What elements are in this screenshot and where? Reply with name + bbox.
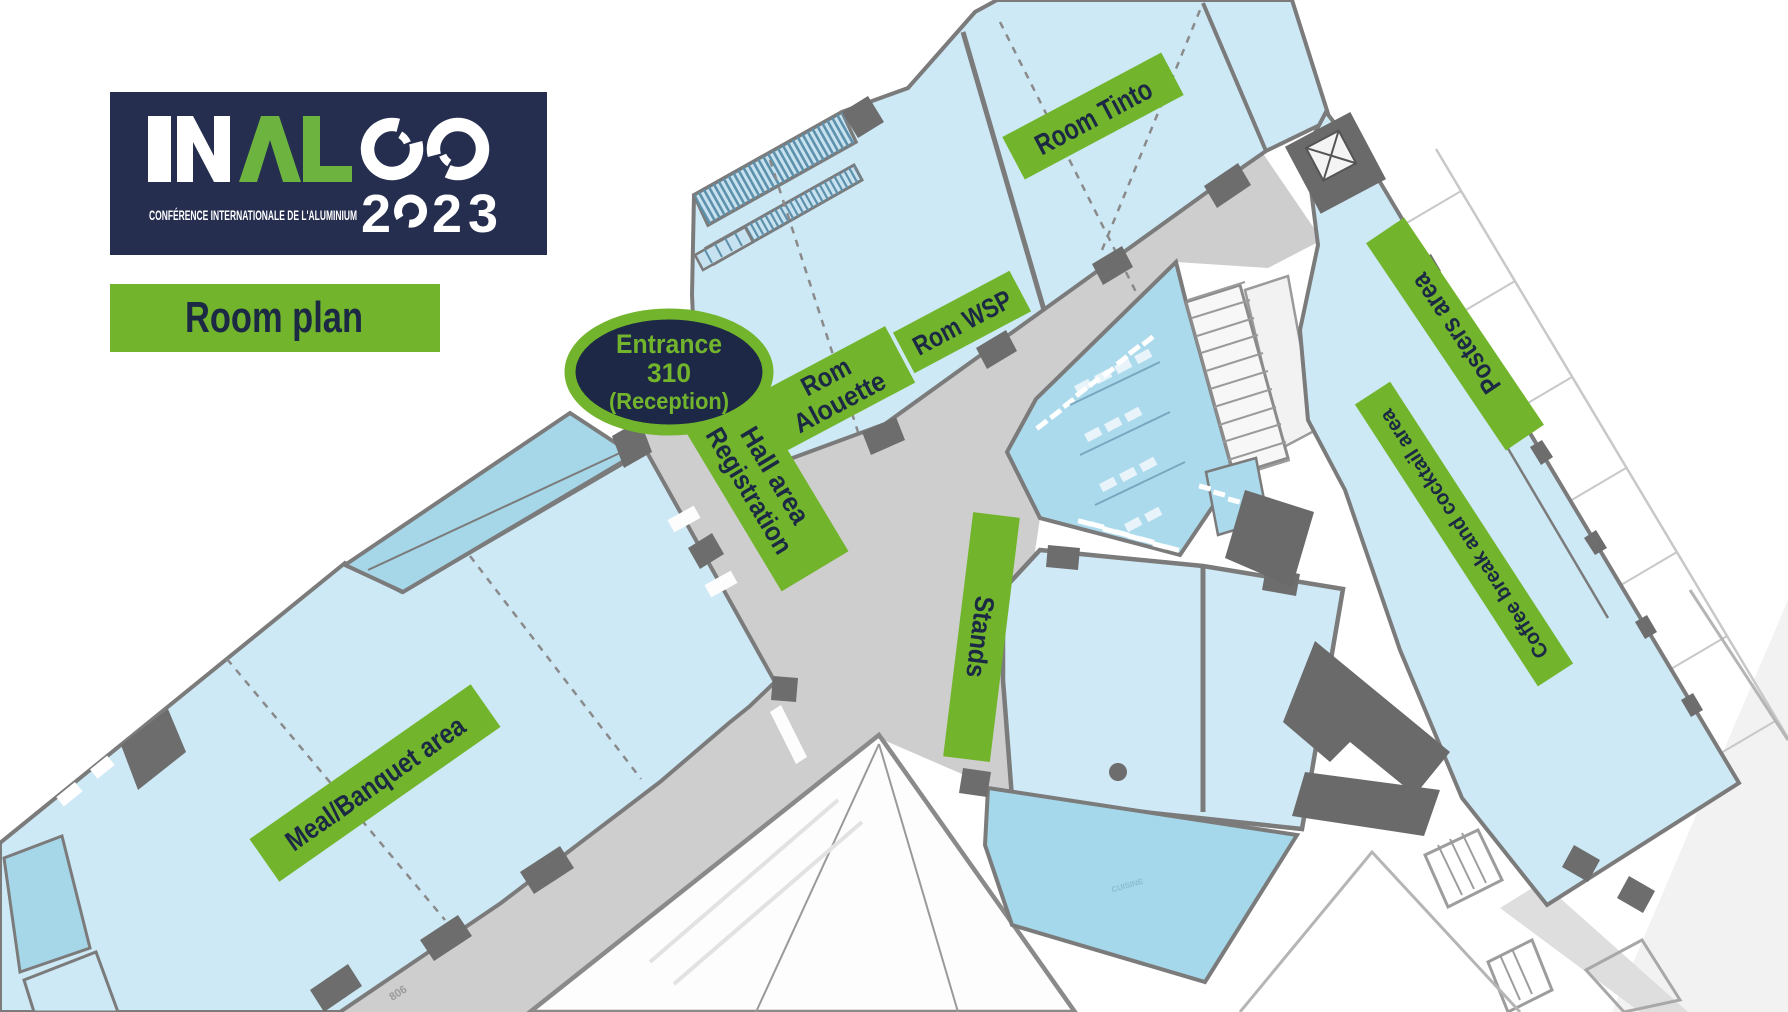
svg-text:2: 2	[361, 184, 391, 244]
svg-text:2: 2	[432, 184, 462, 244]
svg-text:3: 3	[468, 184, 498, 244]
svg-text:CONFÉRENCE INTERNATIONALE DE L: CONFÉRENCE INTERNATIONALE DE L'ALUMINIUM	[149, 208, 357, 223]
svg-text:310: 310	[647, 358, 691, 388]
svg-text:Entrance: Entrance	[616, 329, 722, 359]
svg-text:Room plan: Room plan	[185, 293, 363, 342]
svg-text:(Reception): (Reception)	[609, 388, 729, 414]
